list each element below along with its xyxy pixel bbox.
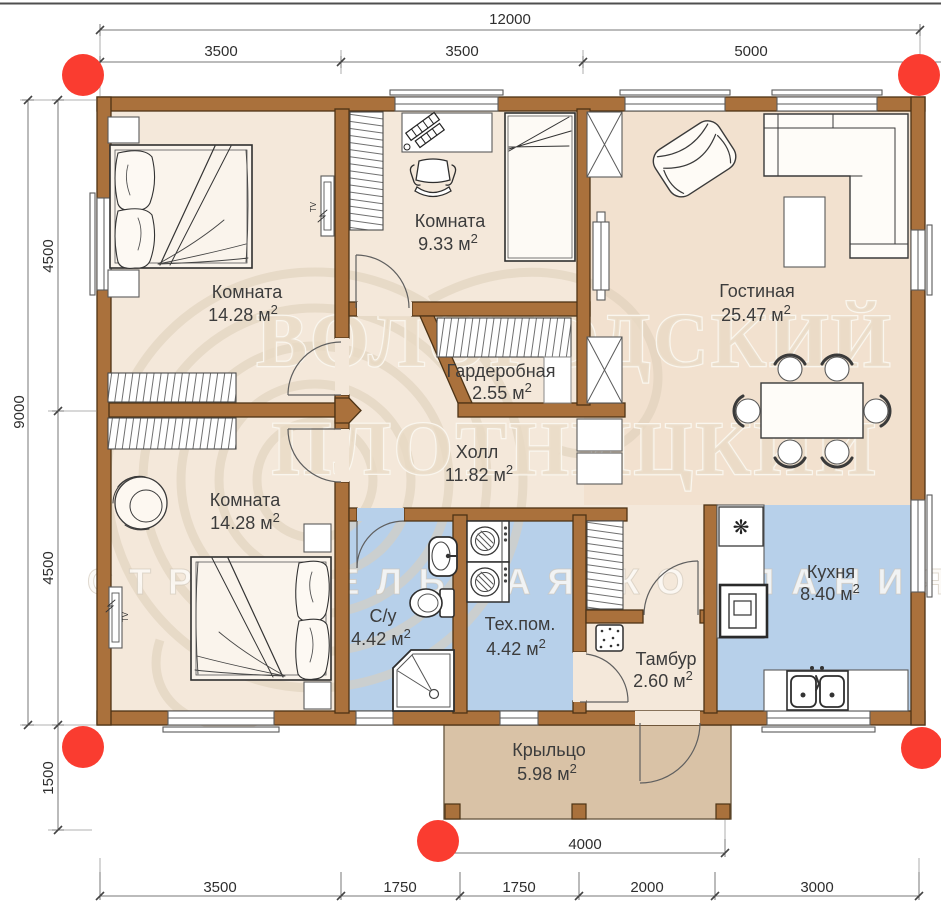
svg-text:1500: 1500 — [40, 761, 57, 794]
svg-text:2.55 м2: 2.55 м2 — [472, 380, 532, 403]
svg-text:5.98 м2: 5.98 м2 — [517, 761, 577, 784]
svg-text:4.42 м2: 4.42 м2 — [351, 626, 411, 649]
svg-text:Гардеробная: Гардеробная — [447, 361, 556, 381]
svg-text:3500: 3500 — [203, 879, 236, 896]
svg-text:14.28 м2: 14.28 м2 — [208, 302, 278, 325]
svg-text:5000: 5000 — [734, 43, 767, 60]
svg-text:1750: 1750 — [502, 879, 535, 896]
svg-text:Кухня: Кухня — [807, 562, 855, 582]
svg-text:8.40 м2: 8.40 м2 — [800, 581, 860, 604]
svg-text:3500: 3500 — [204, 43, 237, 60]
svg-text:Тех.пом.: Тех.пом. — [485, 614, 556, 634]
svg-text:С/у: С/у — [370, 606, 397, 626]
svg-text:Холл: Холл — [456, 442, 498, 462]
svg-text:Тамбур: Тамбур — [635, 649, 696, 669]
svg-text:11.82 м2: 11.82 м2 — [445, 462, 513, 485]
svg-text:9.33 м2: 9.33 м2 — [418, 231, 478, 254]
svg-text:TV: TV — [309, 201, 318, 212]
svg-text:14.28 м2: 14.28 м2 — [210, 510, 280, 533]
svg-text:9000: 9000 — [11, 395, 28, 428]
svg-text:4500: 4500 — [40, 551, 57, 584]
svg-text:Комната: Комната — [212, 282, 283, 302]
svg-text:2.60 м2: 2.60 м2 — [633, 668, 693, 691]
svg-text:25.47 м2: 25.47 м2 — [721, 302, 791, 325]
svg-text:Комната: Комната — [210, 490, 281, 510]
svg-text:TV: TV — [121, 611, 130, 622]
svg-text:4500: 4500 — [40, 239, 57, 272]
svg-text:3000: 3000 — [800, 879, 833, 896]
svg-text:12000: 12000 — [489, 11, 531, 28]
svg-text:❋: ❋ — [733, 517, 750, 539]
svg-text:1750: 1750 — [383, 879, 416, 896]
svg-text:Комната: Комната — [415, 211, 486, 231]
svg-text:3500: 3500 — [445, 43, 478, 60]
svg-text:2000: 2000 — [630, 879, 663, 896]
svg-text:4.42 м2: 4.42 м2 — [486, 636, 546, 659]
svg-text:4000: 4000 — [568, 836, 601, 853]
svg-text:Гостиная: Гостиная — [719, 281, 795, 301]
svg-text:Крыльцо: Крыльцо — [512, 740, 585, 760]
